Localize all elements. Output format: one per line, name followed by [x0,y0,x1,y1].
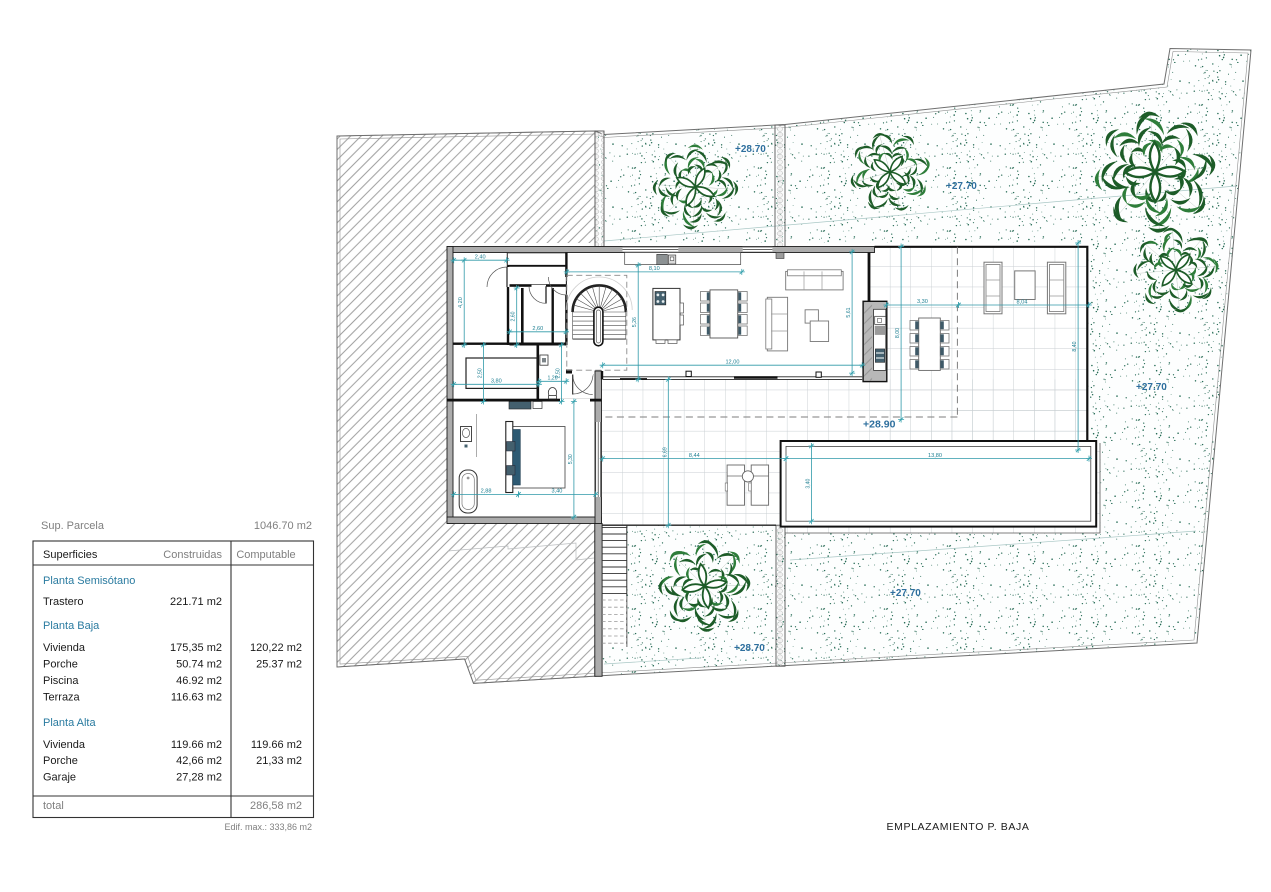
svg-text:4,20: 4,20 [458,297,464,308]
svg-text:12,00: 12,00 [725,359,739,365]
svg-text:Vivienda: Vivienda [43,642,86,654]
svg-text:+27.70: +27.70 [1136,382,1167,393]
svg-text:5,30: 5,30 [568,454,574,464]
svg-text:175,35 m2: 175,35 m2 [170,642,222,654]
svg-text:3,30: 3,30 [917,299,928,305]
svg-text:8,40: 8,40 [1072,341,1078,351]
svg-text:50.74 m2: 50.74 m2 [176,659,222,671]
svg-text:1046.70 m2: 1046.70 m2 [254,520,312,532]
svg-text:2,50: 2,50 [556,368,562,378]
svg-text:119.66 m2: 119.66 m2 [251,739,302,751]
svg-text:+27.70: +27.70 [890,588,921,599]
svg-text:2,60: 2,60 [511,311,517,321]
svg-text:Piscina: Piscina [43,675,79,687]
svg-text:Planta Baja: Planta Baja [43,620,100,632]
svg-text:46.92 m2: 46.92 m2 [176,675,222,687]
svg-text:286,58 m2: 286,58 m2 [250,800,302,812]
svg-text:Vivienda: Vivienda [43,739,86,751]
svg-text:6,69: 6,69 [662,447,668,457]
svg-text:total: total [43,800,64,812]
svg-text:EMPLAZAMIENTO P. BAJA: EMPLAZAMIENTO P. BAJA [887,821,1030,833]
svg-text:+27.70: +27.70 [946,181,977,192]
svg-text:119.66 m2: 119.66 m2 [171,739,222,751]
svg-text:8,04: 8,04 [1017,300,1028,306]
svg-text:Edif. max.: 333,86 m2: Edif. max.: 333,86 m2 [224,822,312,832]
svg-text:5,61: 5,61 [846,307,852,317]
svg-text:3,40: 3,40 [805,478,811,488]
svg-text:3,80: 3,80 [491,379,502,385]
svg-text:8,10: 8,10 [649,266,660,272]
svg-text:Terraza: Terraza [43,692,81,704]
svg-text:8,00: 8,00 [895,328,901,338]
svg-text:Sup. Parcela: Sup. Parcela [41,520,105,532]
svg-text:116.63 m2: 116.63 m2 [171,692,222,704]
svg-text:3,40: 3,40 [552,489,563,495]
svg-text:25.37 m2: 25.37 m2 [256,659,302,671]
svg-text:21,33 m2: 21,33 m2 [256,755,302,767]
svg-text:2,40: 2,40 [475,254,486,260]
svg-text:2,60: 2,60 [532,326,543,332]
svg-text:Superficies: Superficies [43,549,98,561]
svg-text:+28.70: +28.70 [734,643,765,654]
svg-text:5,26: 5,26 [632,317,638,327]
svg-text:Planta Semisótano: Planta Semisótano [43,575,135,587]
svg-text:42,66 m2: 42,66 m2 [176,755,222,767]
svg-text:Trastero: Trastero [43,596,84,608]
svg-text:Porche: Porche [43,755,78,767]
svg-text:8,44: 8,44 [689,453,700,459]
svg-text:221.71 m2: 221.71 m2 [170,596,222,608]
svg-text:Porche: Porche [43,659,78,671]
svg-text:2,50: 2,50 [477,368,483,378]
svg-text:Computable: Computable [236,549,295,561]
svg-text:Planta Alta: Planta Alta [43,717,96,729]
svg-text:13,80: 13,80 [928,453,942,459]
svg-text:Construidas: Construidas [163,549,222,561]
svg-text:+28.90: +28.90 [863,419,896,431]
svg-text:120,22 m2: 120,22 m2 [250,642,302,654]
svg-text:27,28 m2: 27,28 m2 [176,772,222,784]
svg-text:Garaje: Garaje [43,772,76,784]
svg-text:+28.70: +28.70 [735,144,766,155]
svg-text:2,88: 2,88 [481,489,492,495]
